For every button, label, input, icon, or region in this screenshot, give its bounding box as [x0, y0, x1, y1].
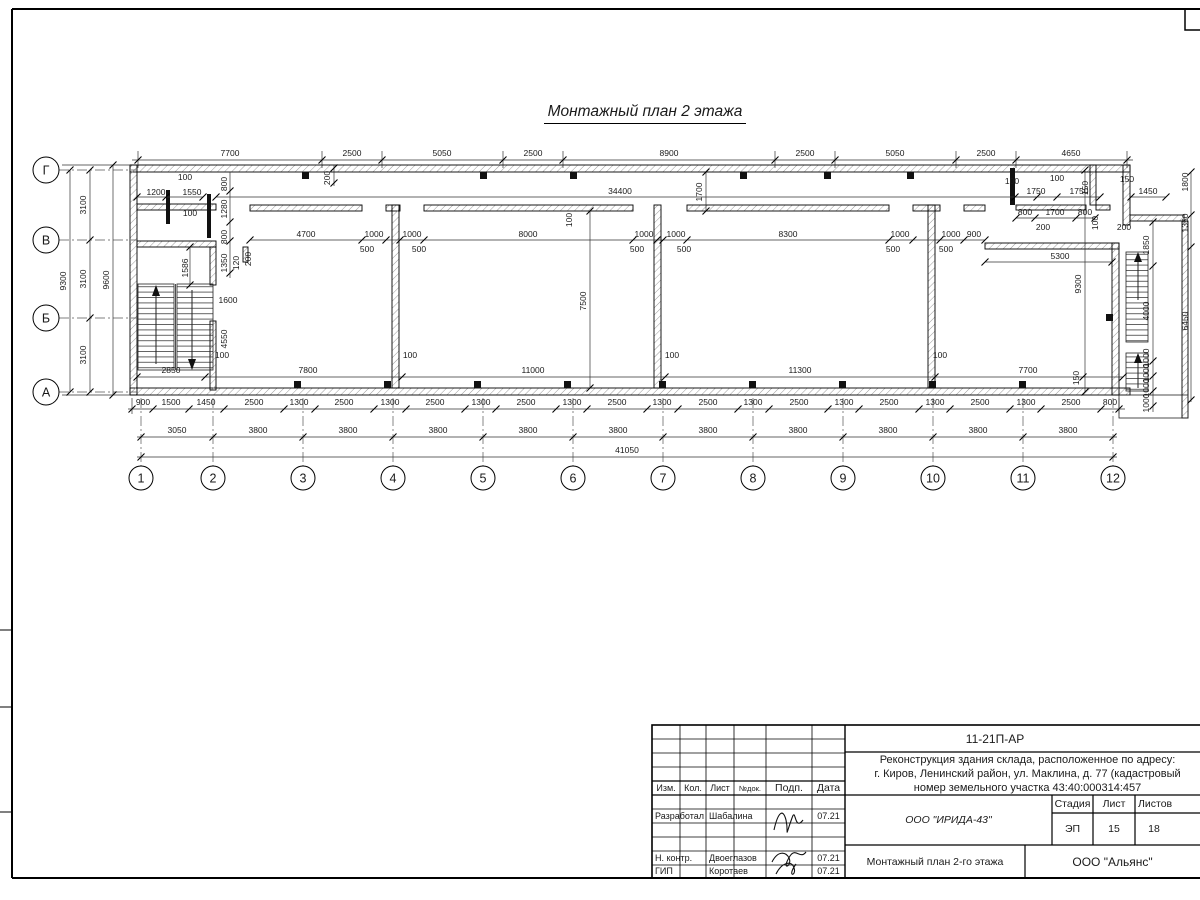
axis-col-label: 2	[210, 472, 217, 486]
dim-label: 900	[967, 229, 981, 239]
dim-label: 500	[939, 244, 953, 254]
dim-label: 2850	[162, 365, 181, 375]
dim-label: 1700	[1046, 207, 1065, 217]
dim-label: 100	[933, 350, 947, 360]
tb-desc-line3: номер земельного участка 43:40:000314:45…	[914, 781, 1142, 795]
dim-label: 8900	[660, 148, 679, 158]
dim-label: 1200	[147, 187, 166, 197]
dim-label: 3800	[789, 425, 808, 435]
dim-label: 800	[1018, 207, 1032, 217]
dim-label: 3100	[78, 195, 88, 214]
dim-label: 7700	[1019, 365, 1038, 375]
dim-label: 3800	[1059, 425, 1078, 435]
dim-label: 1750	[1070, 186, 1089, 196]
dim-label: 1000	[942, 229, 961, 239]
dim-label: 2500	[880, 397, 899, 407]
dim-label: 200	[1117, 222, 1131, 232]
tb-role-3: ГИП	[652, 864, 706, 878]
tb-col-kol: Кол.	[680, 781, 706, 795]
tb-col-data: Дата	[812, 781, 845, 795]
dim-label: 34400	[608, 186, 632, 196]
dim-label: 1750	[1027, 186, 1046, 196]
dim-label: 3100	[78, 345, 88, 364]
dim-label: 2500	[977, 148, 996, 158]
tb-name-1: Шабалина	[706, 809, 766, 823]
tb-role-2: Н. контр.	[652, 851, 706, 865]
dim-label: 1280	[219, 199, 229, 218]
dim-label: 2500	[699, 397, 718, 407]
dim-label: 2500	[608, 397, 627, 407]
dim-label: 100	[183, 208, 197, 218]
dim-label: 41050	[615, 445, 639, 455]
dim-label: 900	[136, 397, 150, 407]
dim-label: 1350	[1180, 213, 1190, 232]
dim-label: 4700	[297, 229, 316, 239]
dim-label: 800	[219, 177, 229, 191]
dim-label: 120	[231, 256, 241, 270]
dim-label: 2500	[245, 397, 264, 407]
dim-label: 1550	[183, 187, 202, 197]
dim-label: 800	[1078, 207, 1092, 217]
dim-label: 9600	[101, 270, 111, 289]
tb-col-izm: Изм.	[652, 781, 680, 795]
tb-role-1: Разработал	[652, 809, 706, 823]
dim-label: 7800	[299, 365, 318, 375]
dim-label: 200	[322, 171, 332, 185]
dim-label: 2500	[1062, 397, 1081, 407]
tb-col-ndok: №док.	[734, 781, 766, 795]
dim-label: 3800	[249, 425, 268, 435]
dim-label: 500	[360, 244, 374, 254]
axis-row-label: А	[42, 386, 51, 400]
stair-left	[138, 284, 213, 370]
axis-col-label: 8	[750, 472, 757, 486]
dim-label: 11300	[788, 365, 811, 375]
dim-label: 1450	[1139, 186, 1158, 196]
dim-label: 4550	[219, 329, 229, 348]
dim-label: 800	[1103, 397, 1117, 407]
dim-label: 1850	[1141, 235, 1151, 254]
dim-label: 2500	[426, 397, 445, 407]
axis-col-label: 3	[300, 472, 307, 486]
dim-label: 1300	[926, 397, 945, 407]
dim-label: 2500	[517, 397, 536, 407]
dim-label: 6450	[1180, 311, 1190, 330]
dim-label: 1000	[365, 229, 384, 239]
axis-row-label: Б	[42, 312, 50, 326]
dim-label: 5050	[433, 148, 452, 158]
dim-label: 2500	[971, 397, 990, 407]
dim-label: 1300	[381, 397, 400, 407]
dim-label: 150	[1071, 371, 1081, 385]
dim-label: 1000	[891, 229, 910, 239]
dim-label: 3800	[699, 425, 718, 435]
dim-label: 1300	[472, 397, 491, 407]
tb-desc-line1: Реконструкция здания склада, расположенн…	[880, 753, 1176, 767]
dim-label: 500	[886, 244, 900, 254]
dim-label: 1000	[667, 229, 686, 239]
dim-label: 4000	[1141, 301, 1151, 320]
tb-date-3: 07.21	[812, 864, 845, 878]
dim-label: 1350	[219, 253, 229, 272]
dim-label: 500	[412, 244, 426, 254]
tb-desc-line2: г. Киров, Ленинский район, ул. Маклина, …	[874, 767, 1180, 781]
tb-project-desc: Реконструкция здания склада, расположенн…	[845, 753, 1200, 795]
dim-label: 100	[1005, 176, 1019, 186]
dim-label: 3800	[429, 425, 448, 435]
axis-col-label: 1	[138, 472, 145, 486]
tb-stage-value: ЭП	[1052, 813, 1093, 845]
axis-lines	[59, 170, 1113, 466]
dim-label: 100	[1090, 216, 1100, 230]
tb-name-3: Коротаев	[706, 864, 766, 878]
dim-label: 1600	[219, 295, 238, 305]
dim-label: 1450	[197, 397, 216, 407]
columns	[166, 168, 1113, 388]
dim-label: 2500	[796, 148, 815, 158]
dim-label: 3050	[168, 425, 187, 435]
dim-label: 7700	[221, 148, 240, 158]
dim-label: 150	[1120, 174, 1134, 184]
dim-label: 1300	[744, 397, 763, 407]
dim-label: 5300	[1051, 251, 1070, 261]
dim-label: 1800	[1180, 172, 1190, 191]
axis-row-label: В	[42, 234, 50, 248]
frame-corner-box	[1185, 9, 1200, 30]
dim-label: 2500	[790, 397, 809, 407]
dim-label: 1000	[635, 229, 654, 239]
dim-label: 100	[403, 350, 417, 360]
dim-label: 11000	[521, 365, 544, 375]
dim-label: 5050	[886, 148, 905, 158]
dim-label: 3800	[969, 425, 988, 435]
tb-date-2: 07.21	[812, 851, 845, 865]
dim-label: 3800	[879, 425, 898, 435]
tb-list-value: 15	[1093, 813, 1135, 845]
dim-label: 3800	[609, 425, 628, 435]
dim-ticks	[67, 157, 1195, 461]
dim-label: 2500	[343, 148, 362, 158]
tb-listov-value: 18	[1135, 813, 1173, 845]
dim-label: 4650	[1062, 148, 1081, 158]
dim-label: 800	[219, 230, 229, 244]
dim-label: 100	[564, 213, 574, 227]
dim-label: 1000	[403, 229, 422, 239]
dim-label: 1000	[1141, 393, 1151, 412]
dim-label: 100	[1050, 173, 1064, 183]
tb-col-list: Лист	[706, 781, 734, 795]
dim-label: 100	[178, 172, 192, 182]
tb-list-label: Лист	[1093, 795, 1135, 813]
axis-col-label: 4	[390, 472, 397, 486]
drawing-sheet: { "sheet_title": "Монтажный план 2 этажа…	[0, 0, 1200, 900]
axis-col-label: 7	[660, 472, 667, 486]
tb-date-1: 07.21	[812, 809, 845, 823]
dim-label: 100	[215, 350, 229, 360]
tb-doc-code: 11-21П-АР	[845, 725, 1145, 752]
walls	[130, 165, 1188, 418]
dim-label: 2500	[335, 397, 354, 407]
dim-label: 200	[1036, 222, 1050, 232]
dim-label: 8300	[779, 229, 798, 239]
tb-name-2: Двоеглазов	[706, 851, 766, 865]
tb-col-podp: Подп.	[766, 781, 812, 795]
axis-col-label: 10	[926, 472, 940, 486]
dim-label: 3800	[339, 425, 358, 435]
axis-col-label: 12	[1106, 472, 1120, 486]
dim-label: 7500	[578, 291, 588, 310]
dim-label: 2500	[524, 148, 543, 158]
axis-row-label: Г	[43, 164, 50, 178]
dim-label: 100	[665, 350, 679, 360]
page-title: Монтажный план 2 этажа	[490, 100, 800, 126]
axis-col-label: 5	[480, 472, 487, 486]
dim-label: 1500	[162, 397, 181, 407]
axis-col-label: 11	[1017, 472, 1030, 486]
dim-label: 1300	[1017, 397, 1036, 407]
tb-org: ООО "ИРИДА-43"	[845, 795, 1052, 845]
dim-label: 3800	[519, 425, 538, 435]
tb-company: ООО "Альянс"	[1025, 845, 1200, 878]
signature-2	[772, 852, 806, 866]
dim-label: 1300	[835, 397, 854, 407]
axis-col-label: 9	[840, 472, 847, 486]
dim-label: 3100	[78, 269, 88, 288]
dim-label: 1300	[290, 397, 309, 407]
dim-label: 9300	[1073, 274, 1083, 293]
dim-label: 500	[677, 244, 691, 254]
dim-label: 1586	[180, 258, 190, 277]
dim-label: 8000	[519, 229, 538, 239]
dim-label: 9300	[58, 271, 68, 290]
axis-col-label: 6	[570, 472, 577, 486]
tb-drawing-name: Монтажный план 2-го этажа	[845, 845, 1025, 878]
dim-label: 500	[630, 244, 644, 254]
tb-stage-label: Стадия	[1052, 795, 1093, 813]
dim-label: 1300	[653, 397, 672, 407]
dim-label: 200	[243, 252, 253, 266]
tb-listov-label: Листов	[1135, 795, 1200, 813]
dim-label: 1700	[694, 182, 704, 201]
dim-label: 1300	[563, 397, 582, 407]
